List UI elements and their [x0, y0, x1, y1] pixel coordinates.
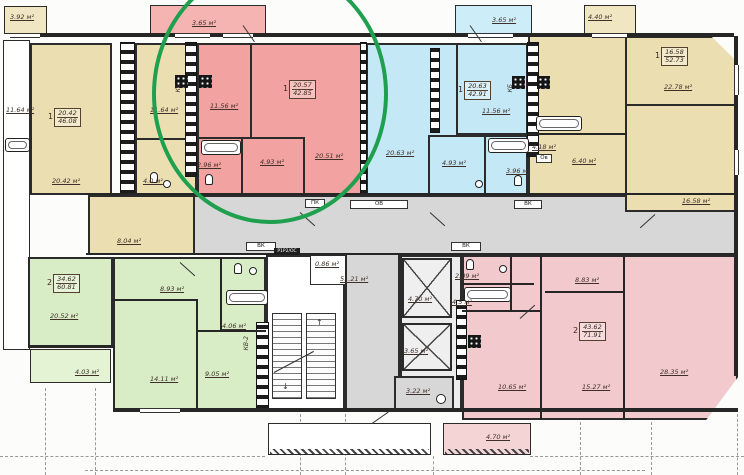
vent-shaft	[120, 42, 135, 195]
floor-plan: ↑ ↓ 3.92 м² 11.64 м² 20.42 м² 11.64 м² 4…	[0, 0, 744, 475]
window	[10, 33, 40, 38]
axis-line	[95, 388, 96, 475]
area-label: 4.5 м²	[452, 299, 472, 306]
room-apt1-hall	[88, 195, 195, 255]
axis-line	[433, 456, 434, 475]
utility-tag-vk: ВК	[451, 242, 481, 251]
area-label: 51.21 м²	[340, 276, 368, 283]
room-apt4-kitchen-block	[528, 33, 627, 195]
apt-info-a3: 1 20.63 42.91	[458, 81, 491, 100]
bathtub-icon	[5, 138, 30, 152]
room-apt5-block	[113, 257, 266, 410]
area-label: 16.58 м²	[682, 198, 710, 205]
sink-icon	[499, 265, 507, 273]
utility-tag-panel: Р1Р2/ОС	[274, 248, 300, 255]
room-apt4-bedroom	[625, 104, 738, 212]
bathtub-icon	[226, 290, 268, 305]
area-label: 8.04 м²	[117, 238, 141, 245]
area-label: 4.06 м²	[222, 323, 246, 330]
area-label: 3.65 м²	[404, 348, 428, 355]
area-label: 0.86 м²	[315, 261, 339, 268]
shaft-label: КВ-2	[244, 336, 250, 350]
bathtub-icon	[536, 116, 582, 131]
area-label: 14.11 м²	[150, 376, 178, 383]
apt-area-box: 16.58 52.73	[661, 47, 688, 66]
area-label: 3.92 м²	[10, 14, 34, 21]
area-label: 4.70 м²	[486, 434, 510, 441]
balcony-hatch	[445, 449, 529, 454]
toilet-icon	[514, 175, 522, 186]
outer-wall-bottom-left	[28, 345, 115, 348]
area-label: 10.65 м²	[498, 384, 526, 391]
utility-tag-vk: ВК	[514, 200, 542, 209]
apt-area-box: 43.62 71.91	[579, 322, 606, 341]
stairs-up-arrow: ↑	[316, 318, 323, 327]
area-label: 20.63 м²	[386, 150, 414, 157]
area-label: 20.42 м²	[52, 178, 80, 185]
sink-icon	[475, 180, 483, 188]
corridor-wall	[86, 253, 738, 255]
apt-area-box: 34.62 60.81	[53, 274, 80, 293]
shaft-label: КБ	[508, 84, 514, 92]
total-area: 71.91	[582, 332, 603, 339]
area-label: 20.52 м²	[50, 313, 78, 320]
axis-line	[0, 456, 265, 457]
bathtub-icon	[488, 138, 529, 153]
balcony-apt5	[30, 349, 111, 383]
apt-info-a5: 2 34.62 60.81	[47, 274, 80, 293]
vent-shaft	[256, 322, 269, 410]
apt-number: 1	[48, 113, 53, 122]
stove-vent-icon	[468, 335, 481, 348]
window	[734, 65, 739, 95]
corridor-wall	[86, 193, 738, 195]
vent-shaft	[430, 48, 440, 133]
wall	[198, 330, 266, 332]
axis-line	[580, 422, 581, 475]
area-label: 22.78 м²	[664, 84, 692, 91]
outer-wall-top	[28, 33, 734, 37]
area-label: 4.0 м²	[143, 178, 163, 185]
axis-line	[651, 422, 652, 475]
wall	[545, 291, 623, 293]
area-label: 15.27 м²	[582, 384, 610, 391]
area-label: 4.18 м²	[532, 144, 556, 151]
area-label: 3.22 м²	[406, 388, 430, 395]
stove-vent-icon	[537, 76, 550, 89]
axis-line	[45, 388, 46, 475]
apt-area-box: 20.42 46.08	[54, 108, 81, 127]
total-area: 52.73	[664, 57, 685, 64]
balcony-hatch	[270, 449, 429, 454]
area-label: 28.35 м²	[660, 369, 688, 376]
axis-line	[737, 414, 738, 475]
axis-line	[85, 470, 645, 471]
wall	[528, 133, 627, 135]
apt-number: 1	[655, 52, 660, 61]
area-label: 6.40 м²	[572, 158, 596, 165]
sink-icon	[163, 180, 171, 188]
axis-line	[530, 456, 744, 457]
side-loggia-strip	[3, 40, 30, 350]
window	[734, 150, 739, 175]
area-label: 4.03 м²	[75, 369, 99, 376]
apt-info-a6: 2 43.62 71.91	[573, 322, 606, 341]
wall	[220, 257, 222, 332]
area-label: 11.56 м²	[482, 108, 510, 115]
area-label: 3.65 м²	[492, 17, 516, 24]
stairs-down-arrow: ↓	[282, 382, 289, 391]
outer-wall-bottom	[113, 408, 738, 412]
area-label: 4.40 м²	[588, 14, 612, 21]
toilet-icon	[466, 259, 474, 270]
total-area: 60.81	[56, 284, 77, 291]
total-area: 42.91	[467, 91, 488, 98]
wall	[540, 255, 542, 420]
area-label: 9.05 м²	[205, 371, 229, 378]
sink-icon	[249, 267, 257, 275]
wall	[462, 310, 542, 312]
wall	[196, 299, 198, 410]
wall	[113, 299, 198, 301]
area-label: 4.70 м²	[408, 296, 432, 303]
vent-shaft	[456, 300, 467, 380]
area-label: 8.83 м²	[575, 277, 599, 284]
apt-area-box: 20.63 42.91	[464, 81, 491, 100]
wall	[462, 283, 534, 285]
apt-info-a1: 1 20.42 46.08	[48, 108, 81, 127]
wall	[510, 257, 512, 312]
utility-tag-ov-small: Ов	[536, 154, 552, 163]
toilet-icon	[234, 263, 242, 274]
total-area: 46.08	[57, 118, 78, 125]
room-apt5-main	[28, 257, 113, 347]
area-label: 4.93 м²	[442, 160, 466, 167]
area-label: 8.93 м²	[160, 286, 184, 293]
window	[592, 33, 627, 38]
utility-tag-ov: ОВ	[350, 200, 408, 209]
area-label: 11.64 м²	[6, 107, 34, 114]
area-label: 2.09 м²	[455, 273, 479, 280]
apt-number: 2	[47, 279, 52, 288]
apt-number: 1	[458, 86, 463, 95]
apt-info-a4: 1 16.58 52.73	[655, 47, 688, 66]
elevator-icon	[402, 258, 452, 318]
utility-tag-vk: ВК	[246, 242, 276, 251]
window	[140, 408, 180, 413]
refuse-chute-icon	[436, 394, 446, 404]
wall	[623, 255, 625, 420]
apt-number: 2	[573, 327, 578, 336]
area-label: 3.96 м²	[506, 168, 530, 175]
